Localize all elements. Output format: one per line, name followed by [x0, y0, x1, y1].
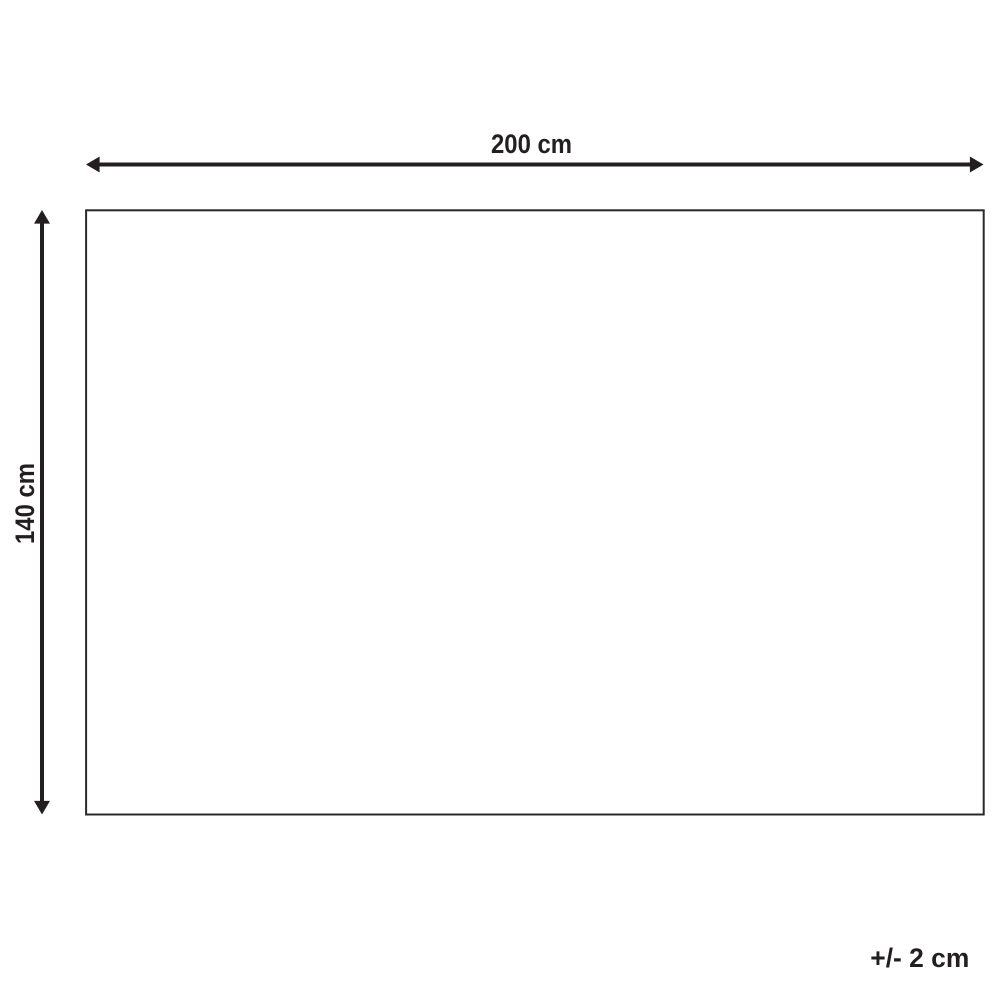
svg-text:200 cm: 200 cm — [491, 129, 572, 159]
svg-text:140 cm: 140 cm — [10, 463, 40, 544]
svg-text:+/- 2 cm: +/- 2 cm — [870, 943, 969, 973]
